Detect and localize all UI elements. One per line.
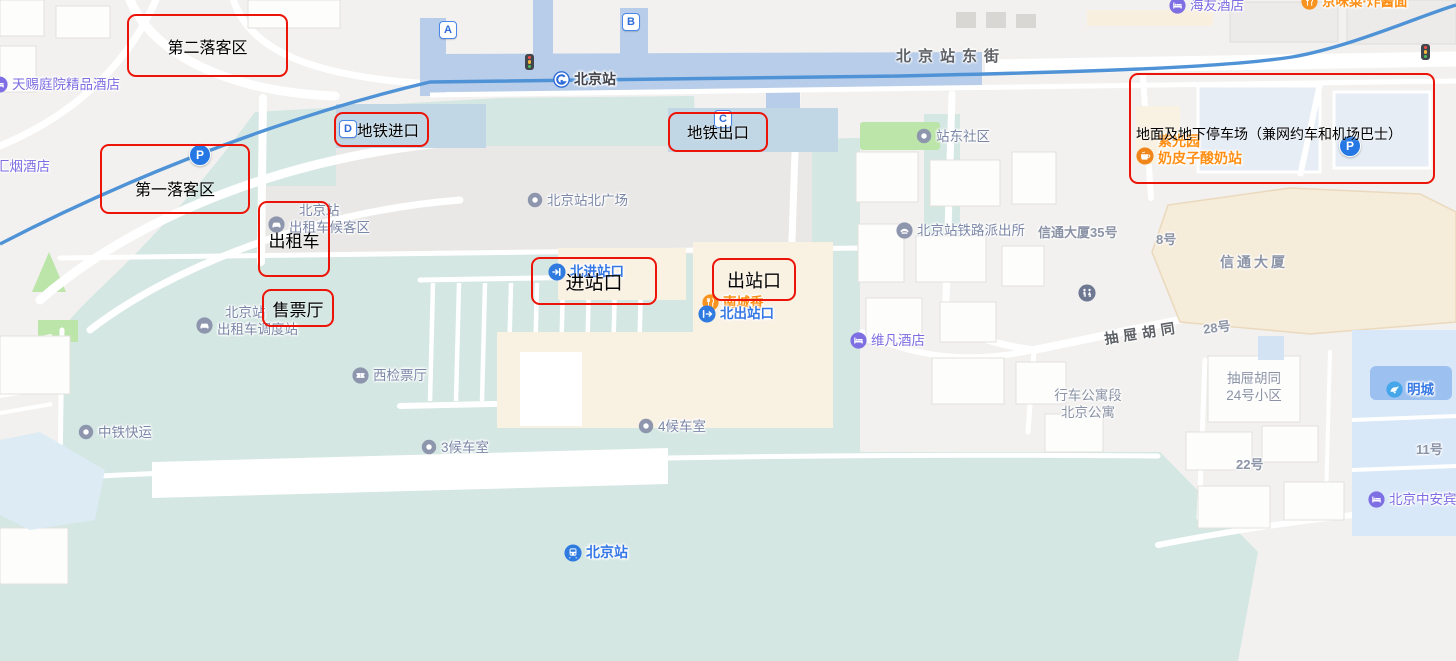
poi-label: 汇烟酒店 bbox=[0, 158, 50, 175]
poi-hotel-tianci[interactable]: 天赐庭院精品酒店 bbox=[0, 76, 120, 93]
place-dot-icon bbox=[638, 418, 654, 434]
hotel-icon bbox=[0, 76, 8, 93]
poi-label: 行车公寓段北京公寓 bbox=[1033, 387, 1143, 421]
poi-waiting-room-3[interactable]: 3候车室 bbox=[421, 439, 489, 456]
poi-label: 北京站 bbox=[574, 71, 616, 88]
annotation-label: 第二落客区 bbox=[167, 34, 247, 58]
poi-label: 中铁快运 bbox=[98, 424, 152, 441]
annotation-box-station-exit: 出站口 bbox=[712, 258, 796, 301]
poi-railway-police[interactable]: 北京站铁路派出所 bbox=[896, 222, 1025, 239]
place-dot-icon bbox=[78, 424, 94, 440]
poi-hotel-zhongan[interactable]: 北京中安宾 bbox=[1368, 491, 1456, 508]
poi-label: 3候车室 bbox=[441, 439, 489, 456]
poi-label: 北出站口 bbox=[720, 305, 774, 322]
poi-west-ticket-hall[interactable]: 西检票厅 bbox=[352, 367, 427, 384]
place-dot-icon bbox=[527, 192, 543, 208]
poi-label: 维凡酒店 bbox=[871, 332, 925, 349]
traffic-light-icon bbox=[1421, 44, 1430, 60]
poi-hotel-weifan[interactable]: 维凡酒店 bbox=[850, 332, 925, 349]
map-canvas[interactable]: 天赐庭院精品酒店 汇烟酒店 海友酒店 京味菜·炸酱面 北京站 站东社区 北京站北… bbox=[0, 0, 1456, 661]
annotation-label: 地铁进口 bbox=[357, 119, 419, 141]
hotel-icon bbox=[1368, 491, 1385, 508]
building-label: 信通大厦 bbox=[1220, 252, 1288, 272]
poi-restroom[interactable] bbox=[1078, 284, 1096, 302]
police-icon bbox=[896, 222, 913, 239]
poi-north-exit[interactable]: 北出站口 bbox=[698, 305, 774, 323]
poi-apartment-block[interactable]: 行车公寓段北京公寓 bbox=[1033, 387, 1143, 421]
annotation-box-dropoff-1: 第一落客区 bbox=[100, 144, 250, 214]
poi-label: 北京站北广场 bbox=[547, 192, 628, 209]
annotation-box-ticket-hall: 售票厅 bbox=[262, 289, 334, 327]
traffic-light-icon bbox=[525, 54, 534, 70]
annotation-label: 地铁出口 bbox=[687, 121, 749, 143]
poi-label: 站东社区 bbox=[936, 128, 990, 145]
poi-hotel-haiyou[interactable]: 海友酒店 bbox=[1169, 0, 1244, 14]
exit-icon bbox=[698, 305, 716, 323]
taxi-icon bbox=[196, 317, 213, 334]
annotation-box-subway-entrance: 地铁进口 bbox=[334, 112, 429, 147]
place-dot-icon bbox=[916, 128, 932, 144]
annotation-box-taxi: 出租车 bbox=[258, 201, 330, 277]
poi-zhandong-community[interactable]: 站东社区 bbox=[916, 128, 990, 145]
annotation-label: 出租车 bbox=[269, 227, 320, 252]
subway-exit-a-marker[interactable]: A bbox=[439, 21, 457, 39]
poi-china-railway-express[interactable]: 中铁快运 bbox=[78, 424, 152, 441]
poi-restaurant-jingweicai[interactable]: 京味菜·炸酱面 bbox=[1301, 0, 1408, 10]
annotation-label: 进站口 bbox=[565, 268, 622, 295]
ticket-icon bbox=[352, 367, 369, 384]
annotation-box-parking-lot: 地面及地下停车场（兼网约车和机场巴士） bbox=[1129, 73, 1435, 184]
restroom-icon bbox=[1078, 284, 1096, 302]
poi-label: 海友酒店 bbox=[1190, 0, 1244, 14]
bird-brand-icon bbox=[1386, 381, 1403, 398]
poi-metro-beijingzhan[interactable]: 北京站 bbox=[553, 71, 616, 88]
hotel-icon bbox=[1169, 0, 1186, 14]
poi-waiting-room-4[interactable]: 4候车室 bbox=[638, 418, 706, 435]
restaurant-icon bbox=[1301, 0, 1318, 10]
building-label: 8号 bbox=[1156, 229, 1176, 248]
building-label: 22号 bbox=[1236, 454, 1263, 473]
poi-label: 天赐庭院精品酒店 bbox=[12, 76, 120, 93]
poi-label: 北京站铁路派出所 bbox=[917, 222, 1025, 239]
poi-label: 明城 bbox=[1407, 381, 1434, 398]
poi-label: 西检票厅 bbox=[373, 367, 427, 384]
annotation-label: 地面及地下停车场（兼网约车和机场巴士） bbox=[1136, 124, 1402, 144]
annotation-label: 出站口 bbox=[727, 267, 781, 293]
annotation-label: 售票厅 bbox=[273, 296, 324, 321]
poi-hotel-huiyan[interactable]: 汇烟酒店 bbox=[0, 158, 50, 175]
poi-beijing-railway-station[interactable]: 北京站 bbox=[564, 544, 628, 562]
annotation-box-dropoff-2: 第二落客区 bbox=[127, 14, 288, 77]
place-dot-icon bbox=[421, 439, 437, 455]
poi-label: 抽屉胡同24号小区 bbox=[1206, 370, 1302, 404]
poi-label: 4候车室 bbox=[658, 418, 706, 435]
subway-exit-b-marker[interactable]: B bbox=[622, 13, 640, 31]
building-label: 11号 bbox=[1416, 439, 1443, 458]
poi-choutihutong-24[interactable]: 抽屉胡同24号小区 bbox=[1206, 370, 1302, 404]
poi-label: 北京站 bbox=[586, 544, 628, 561]
poi-north-square[interactable]: 北京站北广场 bbox=[527, 192, 628, 209]
metro-logo-icon bbox=[553, 71, 570, 88]
annotation-box-station-entrance: 进站口 bbox=[531, 257, 657, 305]
train-station-icon bbox=[564, 544, 582, 562]
annotation-label: 第一落客区 bbox=[135, 176, 215, 200]
street-beijingzhan-east-st: 北京站东街 bbox=[896, 45, 1006, 66]
building-label: 28号 bbox=[1202, 315, 1232, 338]
hotel-icon bbox=[850, 332, 867, 349]
poi-mingcheng[interactable]: 明城 bbox=[1386, 381, 1434, 398]
building-label: 信通大厦35号 bbox=[1038, 222, 1117, 241]
poi-label: 北京中安宾 bbox=[1389, 491, 1456, 508]
poi-label: 京味菜·炸酱面 bbox=[1322, 0, 1408, 10]
annotation-box-subway-exit: 地铁出口 bbox=[668, 112, 768, 152]
